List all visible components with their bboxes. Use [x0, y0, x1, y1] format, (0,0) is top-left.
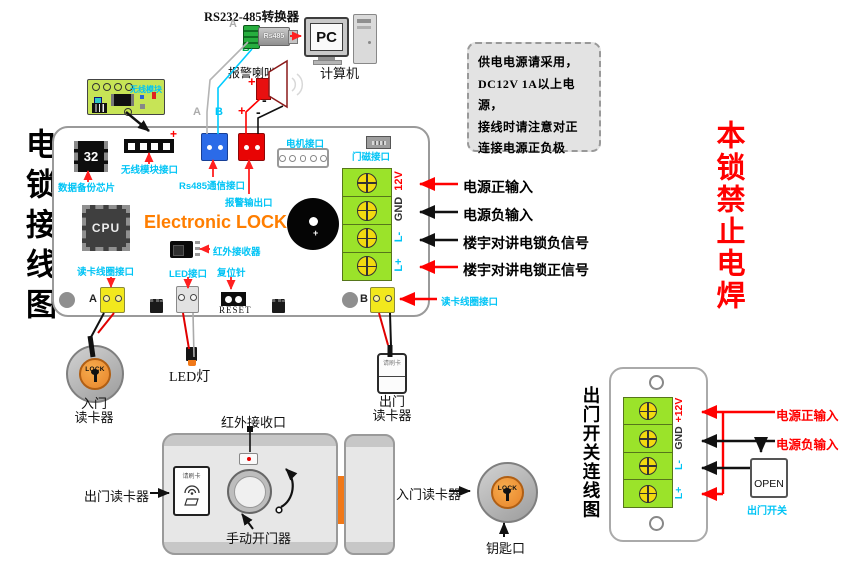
- card-coil-label-a: 读卡线圈接口: [77, 264, 134, 278]
- ir-receiver-component: [170, 241, 193, 258]
- panel-hole-bottom: [649, 516, 664, 531]
- screw-icon: [639, 402, 657, 420]
- warning-text: 本锁禁止电焊: [707, 120, 749, 312]
- note-line: 接线时请注意对正: [478, 117, 591, 139]
- exit-reader-label: 出门 读卡器: [366, 395, 418, 422]
- alarm-output-label: 报警输出口: [225, 195, 273, 209]
- electric-lock-wiring-diagram: 电锁接线图 本锁禁止电焊 供电电源请采用， DC12V 1A以上电源， 接线时请…: [0, 0, 857, 576]
- wire-exit-black: [390, 313, 391, 346]
- mount-hole-right: [342, 292, 358, 308]
- note-line: DC12V 1A以上电源，: [478, 74, 591, 117]
- swipe-panel-text: 请刷卡: [182, 471, 200, 480]
- wire-a: [207, 42, 248, 134]
- header-plus: +: [170, 127, 177, 141]
- rs485-connector: [201, 133, 228, 161]
- manual-opener-label: 手动开门器: [226, 528, 291, 547]
- port-b-label: B: [360, 293, 368, 305]
- module-grill: [92, 103, 107, 113]
- module-chip: [111, 94, 134, 106]
- note-line: 连接电源正负极: [478, 138, 591, 160]
- wireless-header: [124, 139, 174, 153]
- manual-knob-outer: [227, 469, 272, 514]
- led-light-body: [186, 347, 197, 361]
- key-icon: [506, 493, 509, 501]
- terminal-l-plus: [342, 252, 392, 281]
- buzzer-plus: +: [313, 228, 318, 238]
- pc-monitor: PC: [304, 17, 349, 57]
- speaker-minus: -: [262, 92, 267, 108]
- ir-receiver-label: 红外接收器: [213, 244, 261, 258]
- wire-b-label-board: B: [215, 106, 223, 118]
- terminal-12v: [623, 397, 673, 426]
- exit-power-pos-label: 电源正输入: [776, 405, 839, 424]
- led-port-label: LED接口: [169, 266, 207, 280]
- reset-label: RESET: [219, 305, 252, 315]
- power-terminal-block: [342, 168, 392, 281]
- exit-switch-title: 出门开关连线图: [579, 386, 604, 519]
- screw-icon: [639, 485, 657, 503]
- door-magnet-connector: [366, 136, 391, 149]
- reset-jumper: [221, 292, 246, 306]
- computer-label: 计算机: [320, 63, 359, 82]
- wireless-port-label: 无线模块接口: [121, 162, 178, 176]
- mount-hole-left: [59, 292, 75, 308]
- callout-power-neg: 电源负输入: [463, 205, 533, 225]
- buzzer: +: [287, 198, 339, 250]
- screw-icon: [357, 173, 377, 193]
- led-connector: [176, 286, 199, 313]
- led-light-label: LED灯: [169, 366, 210, 386]
- entry-reader-callout: 入门读卡器: [396, 484, 461, 503]
- terminal-label-12v: 12V: [393, 166, 405, 196]
- ir-port-label: 红外接收口: [221, 412, 286, 431]
- backup-chip-label: 数据备份芯片: [58, 180, 115, 194]
- wire-minus-label-board: -: [256, 104, 261, 120]
- ir-indicator: [239, 453, 258, 465]
- power-note-box: 供电电源请采用， DC12V 1A以上电源， 接线时请注意对正 连接电源正负极: [467, 42, 601, 152]
- swipe-panel: 请刷卡: [173, 466, 210, 516]
- callout-power-pos: 电源正输入: [463, 177, 533, 197]
- terminal-label-lplus: L+: [393, 250, 405, 280]
- aux-connector-1: [150, 299, 163, 313]
- chip32-label: 32: [84, 149, 98, 164]
- terminal-label-lminus: L-: [393, 222, 405, 252]
- entry-reader-button: LOCK: [66, 345, 124, 403]
- callout-intercom-neg: 楼宇对讲电锁负信号: [463, 233, 589, 253]
- rs485-port-label: Rs485通信接口: [179, 178, 245, 192]
- terminal-l-minus: [623, 452, 673, 481]
- terminal-12v: [342, 168, 392, 197]
- screw-icon: [639, 457, 657, 475]
- wire-led-red: [183, 313, 189, 349]
- screw-icon: [357, 256, 377, 276]
- open-button: OPEN: [750, 458, 788, 498]
- screw-icon: [357, 228, 377, 248]
- exit-terminal-label-lplus: L+: [673, 476, 685, 510]
- wifi-icon: [182, 483, 202, 496]
- callout-intercom-pos: 楼宇对讲电锁正信号: [463, 260, 589, 280]
- wire-plus-label-board: +: [238, 103, 246, 118]
- key-hole-label: 钥匙口: [486, 538, 525, 557]
- panel-hole-top: [649, 375, 664, 390]
- cpu-chip: CPU: [82, 205, 130, 251]
- exit-switch-label: 出门开关: [747, 502, 787, 517]
- terminal-gnd: [342, 196, 392, 225]
- aux-connector-2: [272, 299, 285, 313]
- card-coil-connector-b: [370, 287, 395, 313]
- terminal-l-plus: [623, 479, 673, 508]
- alarm-connector: [238, 133, 265, 161]
- wire-b: [218, 49, 252, 134]
- wire-a-label-board: A: [193, 106, 201, 118]
- exit-reader-card: 请刷卡: [377, 353, 407, 394]
- terminal-l-minus: [342, 224, 392, 253]
- wireless-module-label: 无线模块: [130, 84, 162, 95]
- swipe-card-tiny-text: 请刷卡: [379, 358, 405, 367]
- pc-tower: [353, 14, 377, 64]
- speaker-plus: +: [248, 74, 256, 89]
- door-magnet-label: 门磁接口: [352, 149, 390, 163]
- callout-card-coil-b: 读卡线圈接口: [441, 294, 498, 308]
- ir-receiver-pins: [195, 241, 200, 258]
- lock-side-body: [344, 434, 395, 555]
- screw-icon: [639, 430, 657, 448]
- wireless-module-pcb: 无线模块: [87, 79, 165, 115]
- entry-reader-label: 入门 读卡器: [68, 397, 120, 424]
- card-coil-connector-a: [100, 287, 125, 313]
- key-icon: [94, 374, 97, 382]
- converter-plug: [288, 30, 298, 44]
- exit-power-neg-label: 电源负输入: [776, 434, 839, 453]
- motor-connector: [277, 148, 329, 168]
- screw-icon: [357, 201, 377, 221]
- pc-screen-label: PC: [316, 29, 337, 46]
- wire-a-label-top: A: [229, 18, 237, 30]
- converter-body: Rs485: [258, 27, 290, 46]
- terminal-gnd: [623, 424, 673, 453]
- note-line: 供电电源请采用，: [478, 52, 591, 74]
- converter-chip-label: Rs485: [264, 33, 285, 40]
- key-lock-button: LOCK: [477, 462, 538, 523]
- backup-chip-32: 32: [74, 141, 108, 172]
- open-button-text: OPEN: [754, 478, 784, 490]
- reset-pin-label: 复位针: [217, 265, 246, 279]
- card-icon: [183, 497, 201, 508]
- brand-text: Electronic LOCK: [144, 212, 287, 233]
- exit-terminal-block: [623, 397, 673, 508]
- exit-reader-callout: 出门读卡器: [84, 486, 149, 505]
- converter-title: RS232-485转换器: [204, 6, 299, 25]
- terminal-label-gnd: GND: [393, 194, 405, 224]
- cpu-label: CPU: [92, 221, 120, 235]
- port-a-label: A: [89, 293, 97, 305]
- wire-exit-red: [379, 313, 388, 345]
